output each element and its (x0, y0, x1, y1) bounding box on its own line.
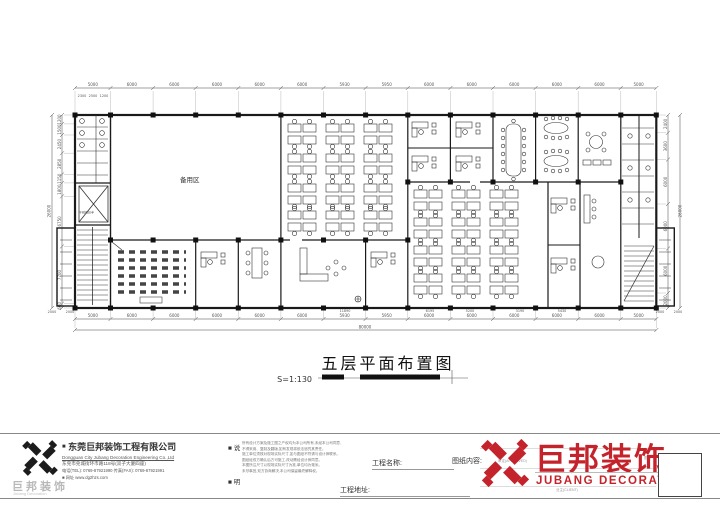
svg-text:6195: 6195 (426, 309, 435, 313)
office-b2 (371, 252, 395, 267)
field-project-name-line (372, 469, 454, 470)
svg-text:6000: 6000 (467, 82, 478, 87)
svg-text:1500: 1500 (57, 124, 62, 135)
svg-text:2400: 2400 (663, 118, 668, 129)
open-office-upper (288, 119, 392, 235)
dim-right-annex: 20002000 (656, 310, 683, 314)
field-client: 业主(CLIENT) (556, 488, 578, 493)
wc-right (622, 128, 654, 224)
svg-text:6000: 6000 (552, 313, 563, 318)
reception-room-right (584, 195, 604, 268)
svg-text:6000: 6000 (663, 221, 668, 232)
svg-text:5000: 5000 (634, 313, 645, 318)
svg-text:2450: 2450 (57, 139, 62, 150)
room-label-reserve: 备用区 (180, 175, 200, 184)
elevator (79, 186, 108, 222)
company-tel-fax: 电话(TEL): 0769-87921990 传真(FAX): 0769-879… (62, 468, 228, 474)
svg-text:6000: 6000 (424, 313, 435, 318)
svg-text:1150: 1150 (57, 173, 62, 184)
title-block: 巨邦装饰 Jubang Decoration ■ 东莞巨邦装饰工程有限公司 Do… (0, 433, 720, 499)
dim-chain-bottom: 5000600060006000600060005930595060006000… (88, 313, 644, 318)
notes-text: 所有设计方案及施工图之产权均为本公司所有,未经本公司同意, 不得采用、复制及翻版… (242, 441, 354, 474)
svg-text:5930: 5930 (340, 313, 351, 318)
stair-left (60, 227, 108, 305)
company-name-cn: ■ 东莞巨邦装饰工程有限公司 (62, 440, 228, 453)
svg-text:2000: 2000 (66, 310, 75, 314)
svg-text:6000: 6000 (212, 82, 223, 87)
svg-text:2000: 2000 (674, 310, 683, 314)
svg-text:11890: 11890 (340, 309, 351, 313)
company-info: ■ 东莞巨邦装饰工程有限公司 Dongguan City Jubang Deco… (62, 440, 228, 481)
jubang-logo-red (478, 436, 532, 490)
svg-text:6000: 6000 (467, 313, 478, 318)
svg-text:6750: 6750 (57, 216, 62, 227)
dim-chain-top: 5000600060006000600060005930595060006000… (88, 82, 644, 87)
svg-text:6000: 6000 (297, 313, 308, 318)
field-project-name: 工程名称: (372, 458, 402, 468)
stair-annotation: 不锈钢扶手 (79, 210, 94, 215)
dim-chain-top-sub: 230025001200 (78, 94, 109, 98)
jubang-logo-rule (535, 472, 663, 473)
drawing-scale: S=1:130 (277, 375, 312, 384)
company-website: ■ 网址 www.dg2hzs.com (62, 475, 228, 481)
svg-text:5930: 5930 (340, 82, 351, 87)
dim-chain-right: 240036006000600060002000 (663, 118, 668, 305)
svg-text:6000: 6000 (127, 313, 138, 318)
svg-text:1800: 1800 (57, 184, 62, 195)
svg-text:6000: 6000 (297, 82, 308, 87)
svg-text:5000: 5000 (88, 82, 99, 87)
svg-text:2300: 2300 (78, 94, 87, 98)
company-address: 东莞市莞城街环市路118号(双子大厦四座) (62, 461, 228, 467)
svg-text:6000: 6000 (552, 82, 563, 87)
note-line: 施工单位须核对现场实际尺寸,如与图纸不符请与设计师联系。 (242, 452, 354, 458)
svg-text:5950: 5950 (382, 82, 393, 87)
svg-text:5430: 5430 (558, 309, 567, 313)
svg-text:6000: 6000 (255, 82, 266, 87)
wc-left (77, 115, 108, 183)
svg-text:6000: 6000 (424, 82, 435, 87)
svg-text:2000: 2000 (656, 310, 665, 314)
drawing-sheet: 5000600060006000600060005930595060006000… (0, 0, 720, 505)
svg-text:5000: 5000 (88, 313, 99, 318)
svg-text:1200: 1200 (57, 114, 62, 125)
dim-total-right: 26000 (678, 204, 683, 217)
svg-text:5950: 5950 (382, 313, 393, 318)
svg-text:6000: 6000 (594, 313, 605, 318)
meeting-small (246, 248, 268, 278)
svg-text:1200: 1200 (100, 94, 109, 98)
notes-label-ming: ■ 明 (228, 476, 240, 486)
drawing-title: 五层平面布置图 (321, 355, 454, 373)
svg-text:6000: 6000 (169, 313, 180, 318)
svg-text:2850: 2850 (57, 158, 62, 169)
svg-text:5000: 5000 (634, 82, 645, 87)
dim-total-bottom: 80000 (359, 325, 372, 330)
svg-text:6000: 6000 (663, 265, 668, 276)
exec-offices-right (551, 198, 575, 273)
note-line: 所有设计方案及施工图之产权均为本公司所有,未经本公司同意, (242, 441, 354, 447)
field-project-address: 工程地址: (340, 485, 370, 495)
bullet-icon: ■ (62, 444, 66, 450)
dim-total-left: 26000 (47, 204, 52, 217)
svg-text:3190: 3190 (516, 309, 525, 313)
company-logo-black (20, 438, 60, 478)
svg-text:6000: 6000 (509, 313, 520, 318)
note-line: 未尽事宜,双方协商解决,本公司保留最终解释权。 (242, 469, 354, 475)
open-office-lower (414, 185, 518, 298)
svg-text:3600: 3600 (663, 141, 668, 152)
svg-text:6000: 6000 (663, 176, 668, 187)
svg-text:2500: 2500 (89, 94, 98, 98)
dim-chain-bottom-sub: 118906195520031905430 (340, 309, 567, 313)
floor-plan-canvas: 5000600060006000600060005930595060006000… (0, 0, 720, 432)
svg-text:6000: 6000 (594, 82, 605, 87)
office-b1 (201, 252, 225, 267)
field-project-address-line (340, 496, 470, 497)
company-name-en: Dongguan City Jubang Decoration Engineer… (62, 455, 228, 460)
notes-label-shuo: ■ 说 (228, 442, 240, 452)
drawing-number-box (658, 453, 702, 497)
svg-text:2000: 2000 (48, 310, 57, 314)
svg-text:6000: 6000 (127, 82, 138, 87)
svg-text:6000: 6000 (212, 313, 223, 318)
svg-text:7700: 7700 (57, 269, 62, 280)
round-table-room (583, 132, 611, 165)
svg-text:5200: 5200 (466, 309, 475, 313)
training-room (112, 242, 186, 303)
svg-text:6000: 6000 (509, 82, 520, 87)
dim-chain-left: 12001500245028501150180067507700600 (57, 114, 62, 310)
company-logo-black-en: Jubang Decoration (13, 491, 47, 496)
svg-text:6000: 6000 (169, 82, 180, 87)
svg-text:6000: 6000 (255, 313, 266, 318)
lounge-bar (300, 248, 361, 302)
